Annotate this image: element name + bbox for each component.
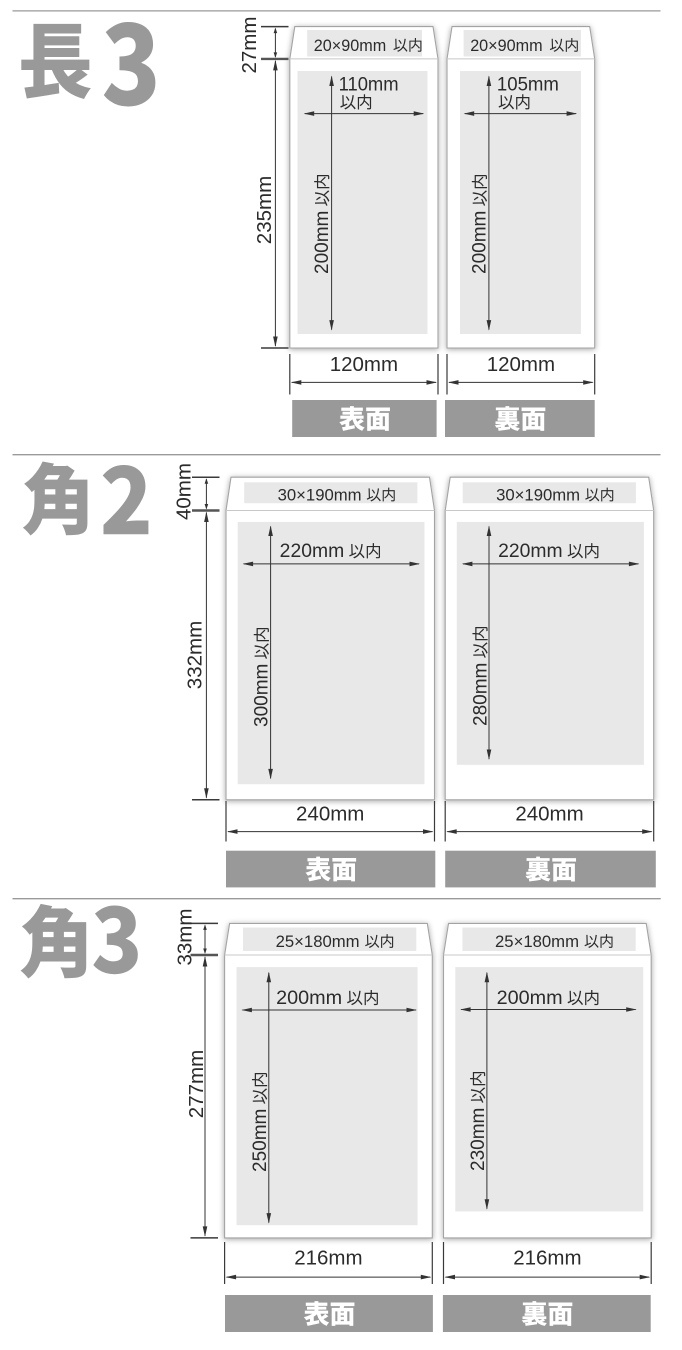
svg-text:230mm: 230mm — [468, 1108, 489, 1171]
svg-text:120mm: 120mm — [487, 353, 555, 376]
svg-text:250mm: 250mm — [250, 1109, 271, 1172]
svg-text:40mm: 40mm — [173, 463, 196, 520]
svg-text:280mm: 280mm — [470, 663, 491, 726]
svg-text:105mm: 105mm — [497, 74, 559, 95]
svg-text:30×190mm: 30×190mm — [278, 486, 362, 504]
svg-text:200mm: 200mm — [276, 988, 342, 1009]
svg-text:220mm: 220mm — [498, 541, 562, 562]
svg-text:235mm: 235mm — [253, 176, 276, 244]
svg-text:216mm: 216mm — [513, 1247, 581, 1270]
svg-text:240mm: 240mm — [515, 802, 583, 825]
svg-text:120mm: 120mm — [330, 353, 398, 376]
svg-text:200mm: 200mm — [312, 211, 333, 274]
svg-text:216mm: 216mm — [294, 1247, 362, 1270]
svg-text:20×90mm: 20×90mm — [314, 37, 386, 55]
svg-text:30×190mm: 30×190mm — [496, 486, 580, 504]
svg-text:25×180mm: 25×180mm — [495, 933, 579, 951]
svg-text:200mm: 200mm — [470, 211, 491, 274]
svg-text:240mm: 240mm — [296, 802, 364, 825]
svg-text:200mm: 200mm — [497, 988, 563, 1009]
svg-text:27mm: 27mm — [238, 17, 261, 74]
svg-text:20×90mm: 20×90mm — [470, 37, 542, 55]
svg-text:277mm: 277mm — [185, 1050, 208, 1118]
svg-text:300mm: 300mm — [252, 664, 273, 727]
svg-text:33mm: 33mm — [174, 909, 197, 966]
svg-text:25×180mm: 25×180mm — [276, 933, 360, 951]
svg-text:220mm: 220mm — [280, 541, 345, 562]
svg-text:110mm: 110mm — [339, 74, 399, 95]
svg-text:332mm: 332mm — [184, 621, 207, 689]
